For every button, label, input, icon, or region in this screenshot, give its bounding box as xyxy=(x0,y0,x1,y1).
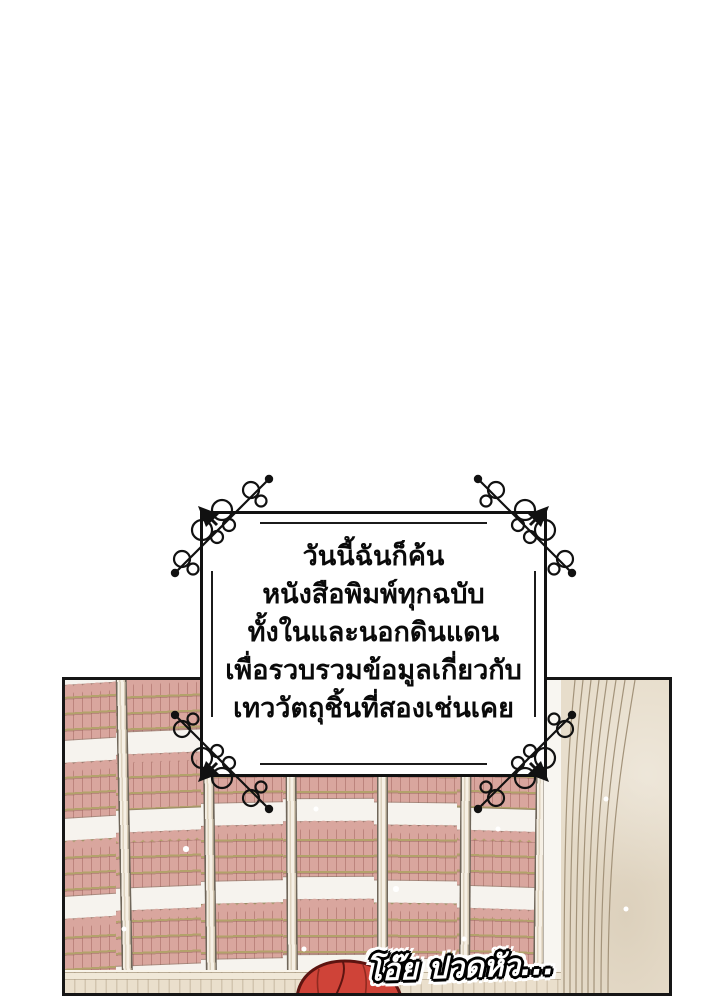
arch-fluting xyxy=(561,680,672,996)
narration-line: ทั้งในและนอกดินแดน xyxy=(203,614,544,652)
comic-page: วันนี้ฉันก็ค้น หนังสือพิมพ์ทุกฉบับ ทั้งใ… xyxy=(0,0,720,996)
frame-inner-line xyxy=(260,763,487,765)
frame-inner-line xyxy=(260,522,487,524)
narration-line: วันนี้ฉันก็ค้น xyxy=(203,538,544,576)
sparkle-dots xyxy=(65,680,67,682)
narration-line: เพื่อรวบรวมข้อมูลเกี่ยวกับ xyxy=(203,652,544,690)
narration-line: หนังสือพิมพ์ทุกฉบับ xyxy=(203,576,544,614)
narration-line: เทววัตถุชิ้นที่สองเช่นเคย xyxy=(203,690,544,728)
stone-arch xyxy=(561,680,669,993)
narration-box: วันนี้ฉันก็ค้น หนังสือพิมพ์ทุกฉบับ ทั้งใ… xyxy=(200,511,547,777)
speech-text: โอ๊ย ปวดหัว... xyxy=(365,940,577,994)
narration-text: วันนี้ฉันก็ค้น หนังสือพิมพ์ทุกฉบับ ทั้งใ… xyxy=(203,538,544,728)
